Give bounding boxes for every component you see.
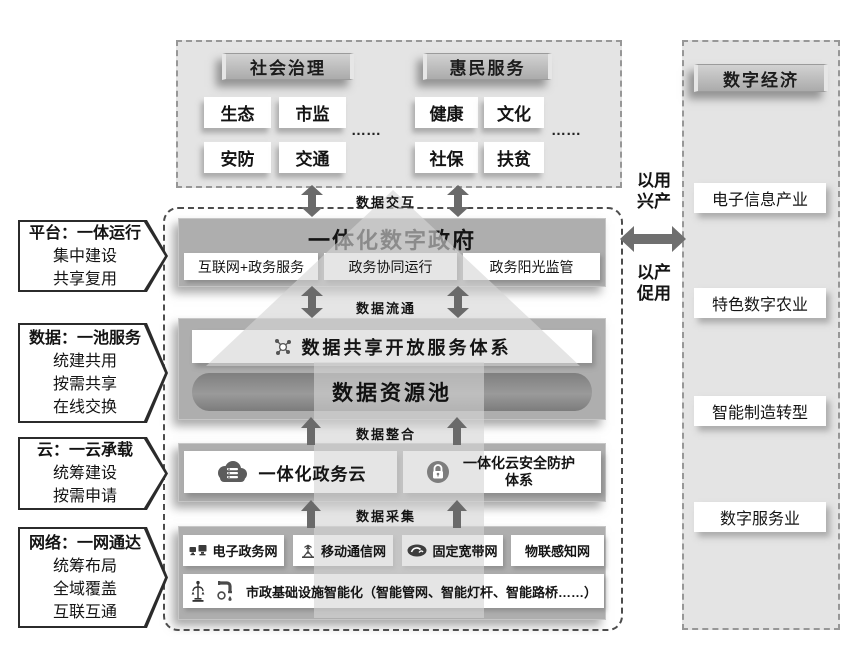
flow-label-integrate: 数据整合 (354, 424, 418, 443)
callout-line: 共享复用 (53, 268, 117, 291)
top-item-traffic: 交通 (279, 142, 346, 173)
callout-text: 云：一云承载 统筹建设 按需申请 (18, 437, 168, 510)
item-label: 电子信息产业 (712, 186, 808, 210)
top-item-culture: 文化 (484, 97, 544, 128)
data-circulate-arrow-left (301, 286, 323, 318)
header-label: 社会治理 (250, 54, 326, 79)
data-interact-arrow-left (301, 185, 323, 217)
item-label: 交通 (296, 145, 330, 170)
cloud-security-box: 一体化云安全防护体系 (403, 451, 601, 493)
infra-label: 市政基础设施智能化（智能管网、智能灯杆、智能路桥……） (246, 582, 597, 601)
share-system-label: 数据共享开放服务体系 (302, 334, 512, 360)
item-label: 社保 (430, 145, 464, 170)
lock-icon (425, 459, 451, 485)
callout-cloud: 云：一云承载 统筹建设 按需申请 (18, 437, 168, 510)
top-item-eco: 生态 (204, 97, 271, 128)
callout-line: 统筹布局 (53, 555, 117, 578)
callout-line: 在线交换 (53, 396, 117, 419)
bridge-top-label: 以用 兴产 (622, 170, 686, 212)
share-bar: 数据共享开放服务体系 (192, 330, 592, 363)
social-governance-header: 社会治理 (222, 53, 354, 80)
gov-cloud-label: 一体化政务云 (259, 460, 367, 485)
pool-label: 数据资源池 (332, 377, 452, 407)
top-item-health: 健康 (415, 97, 478, 128)
network-label: 固定宽带网 (432, 541, 497, 560)
callout-text: 网络：一网通达 统筹布局 全域覆盖 互联互通 (18, 527, 168, 628)
broadband-network-icon (407, 544, 427, 557)
more-dots-2: …… (548, 122, 584, 139)
econ-item-0: 电子信息产业 (694, 183, 826, 213)
econ-item-2: 智能制造转型 (694, 396, 826, 426)
callout-line: 统建共用 (53, 350, 117, 373)
data-interact-arrow-right (447, 185, 469, 217)
more-dots-1: …… (348, 122, 384, 139)
cloud-server-icon (215, 460, 249, 484)
data-collect-arrow-left (301, 500, 321, 528)
callout-data: 数据：一池服务 统建共用 按需共享 在线交换 (18, 323, 168, 423)
callout-line: 统筹建设 (53, 462, 117, 485)
callout-title: 网络：一网通达 (29, 532, 141, 555)
network-label: 电子政务网 (212, 541, 277, 560)
gov-item-1: 政务协同运行 (324, 253, 457, 280)
gov-item-0: 互联网+政务服务 (184, 253, 318, 280)
cloud-security-label: 一体化云安全防护体系 (459, 455, 579, 490)
streetlamp-icon (190, 580, 206, 603)
infra-box: 市政基础设施智能化（智能管网、智能灯杆、智能路桥……） (183, 574, 604, 608)
econ-item-1: 特色数字农业 (694, 288, 826, 318)
item-label: 健康 (430, 100, 464, 125)
diagram-canvas: 社会治理 惠民服务 生态 市监 安防 交通 …… 健康 文化 社保 扶贫 …… … (0, 0, 857, 645)
econ-item-3: 数字服务业 (694, 502, 826, 532)
flow-label-collect: 数据采集 (354, 506, 418, 525)
network-label: 移动通信网 (321, 541, 386, 560)
item-label: 文化 (497, 100, 531, 125)
net-box-1: 移动通信网 (293, 535, 393, 566)
callout-line: 全域覆盖 (53, 578, 117, 601)
item-label: 特色数字农业 (712, 291, 808, 315)
gov-cloud-box: 一体化政务云 (184, 451, 397, 493)
item-label: 数字服务业 (720, 505, 800, 529)
data-pool-band: 数据资源池 (192, 373, 592, 411)
callout-line: 按需申请 (53, 485, 117, 508)
item-label: 安防 (221, 145, 255, 170)
callout-text: 数据：一池服务 统建共用 按需共享 在线交换 (18, 323, 168, 423)
header-label: 数字经济 (723, 66, 799, 91)
callout-line: 互联互通 (53, 601, 117, 624)
water-pipe-icon (215, 580, 237, 602)
flow-label-interact: 数据交互 (354, 192, 418, 211)
data-integrate-arrow-left (301, 417, 321, 445)
net-box-0: 电子政务网 (183, 535, 284, 566)
header-label: 惠民服务 (450, 54, 526, 79)
net-box-2: 固定宽带网 (402, 535, 503, 566)
top-item-poverty: 扶贫 (484, 142, 544, 173)
digital-economy-header: 数字经济 (694, 64, 828, 92)
item-label: 政务阳光监管 (490, 257, 574, 277)
net-box-3: 物联感知网 (511, 535, 604, 566)
callout-title: 平台：一体运行 (29, 222, 141, 245)
mobile-network-icon (300, 543, 316, 559)
item-label: 生态 (221, 100, 255, 125)
gov-title: 一体化数字政府 (178, 223, 606, 255)
data-collect-arrow-right (447, 500, 467, 528)
callout-network: 网络：一网通达 统筹布局 全域覆盖 互联互通 (18, 527, 168, 628)
share-network-icon (273, 337, 293, 357)
item-label: 扶贫 (497, 145, 531, 170)
flow-label-circulate: 数据流通 (354, 298, 418, 317)
callout-platform: 平台：一体运行 集中建设 共享复用 (18, 220, 168, 292)
item-label: 市监 (296, 100, 330, 125)
item-label: 政务协同运行 (349, 257, 433, 277)
egov-network-icon (189, 544, 207, 558)
data-integrate-arrow-right (447, 417, 467, 445)
bridge-arrow (620, 226, 686, 252)
callout-title: 数据：一池服务 (29, 327, 141, 350)
top-item-socialsec: 社保 (415, 142, 478, 173)
bridge-bottom-label: 以产 促用 (622, 262, 686, 304)
data-circulate-arrow-right (447, 286, 469, 318)
top-item-market: 市监 (279, 97, 346, 128)
item-label: 智能制造转型 (712, 399, 808, 423)
callout-line: 集中建设 (53, 245, 117, 268)
welfare-services-header: 惠民服务 (423, 53, 552, 80)
top-item-security: 安防 (204, 142, 271, 173)
callout-line: 按需共享 (53, 373, 117, 396)
callout-title: 云：一云承载 (37, 439, 133, 462)
item-label: 互联网+政务服务 (198, 257, 304, 277)
callout-text: 平台：一体运行 集中建设 共享复用 (18, 220, 168, 292)
network-label: 物联感知网 (525, 541, 590, 560)
right-panel (682, 40, 840, 630)
gov-item-2: 政务阳光监管 (463, 253, 600, 280)
